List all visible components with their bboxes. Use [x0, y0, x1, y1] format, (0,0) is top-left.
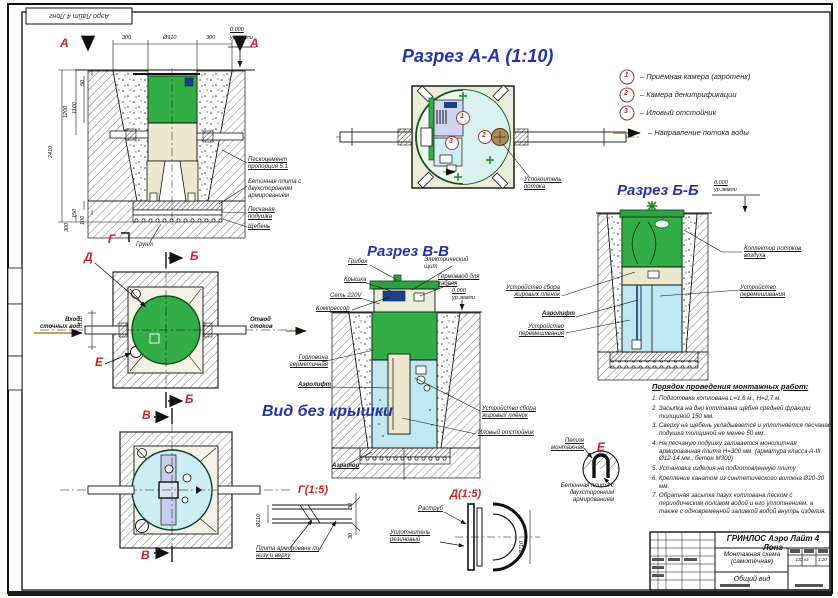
marker-v-top: В	[142, 408, 151, 422]
label-plate-reinforced: Плита армирована по низу и верху	[256, 546, 326, 560]
legend-num-1: 1	[625, 72, 629, 79]
legend-text-2: Камера денитрификации	[646, 90, 736, 99]
dim-d-d110: Ø110	[519, 541, 525, 554]
titleblock-product: ГРИНЛОС Аэро Лайт 4 Лонг	[716, 534, 830, 552]
dim-g-30a: 30	[348, 503, 354, 509]
dim-150: 150	[72, 209, 78, 218]
marker-e: Е	[95, 355, 103, 369]
aa-chamber-2: 2	[482, 132, 486, 139]
level-mark-vv: 0.000	[452, 288, 466, 294]
label-neck: Горловина герметичная	[282, 355, 328, 369]
aa-chamber-3: 3	[449, 138, 453, 145]
titleblock-scale: 1:20	[815, 557, 830, 562]
label-mixer-right: Устройство перемешивания	[740, 285, 802, 299]
marker-a-left: А	[60, 36, 69, 50]
label-airlift-vv: Аэролифт	[298, 382, 331, 389]
drawing-sheet: Аэро Лайт 4 Лонг Разрез А-А (1:10) Разре…	[0, 0, 838, 598]
label-grease-bb: Устройство сбора жировых пленок	[500, 285, 560, 299]
label-rastrub: Раструб	[418, 506, 443, 513]
dim-g-d110: Ø110	[256, 514, 262, 527]
title-detail-e: Е	[597, 440, 605, 454]
marker-v-bottom: В	[141, 548, 150, 562]
title-no-lid: Вид без крышки	[262, 403, 393, 421]
label-outlet: Отвод стоков	[250, 317, 286, 331]
titleblock-doc: Монтажная схема (самотёчная)	[716, 551, 788, 565]
level-sub-bb: ур.земли	[714, 187, 737, 193]
label-aerator: Аэратор	[332, 463, 359, 470]
level-mark-elevation: 0.000	[230, 27, 244, 33]
instruction-step: 7. Обратная засыпка пазух котлована песк…	[652, 492, 832, 515]
legend-dash-4: –	[648, 128, 652, 137]
label-grease-vv: Устройство сбора жировых плёнок	[482, 406, 544, 420]
dim-g-30b: 30	[348, 533, 354, 539]
title-section-bb: Разрез Б-Б	[617, 182, 699, 199]
instruction-step: 1. Подготовка котлована L=1,6 м., Н=2,7 …	[652, 395, 832, 403]
aa-chamber-1: 1	[460, 113, 464, 120]
label-sandcement: Пескоцемент пропорция 5:1	[248, 157, 300, 171]
legend-dash-3: –	[640, 108, 644, 117]
legend-text-1: Приёмная камера (аэротенк)	[646, 72, 750, 81]
level-mark-bb: 0.000	[714, 180, 728, 186]
label-concrete-plate: Бетонная плита с двухсторонним армирован…	[248, 179, 304, 200]
installation-instructions: Порядок проведения монтажных работ: 1. П…	[652, 382, 832, 516]
dim-1100: 1100	[72, 102, 78, 114]
instruction-step: 4. На песчаную подушку заливается моноли…	[652, 440, 832, 463]
dim-300-right: 300	[206, 35, 215, 41]
legend-num-3: 3	[624, 108, 628, 115]
label-inlet: Вход сточных вод	[36, 317, 80, 331]
label-plate-e: Бетонная плита с двухсторонним армирован…	[548, 483, 614, 504]
label-cable-gland: Гермоввод для кабеля	[438, 274, 484, 288]
label-electric-panel: Электрический щит	[424, 257, 476, 271]
instruction-step: 2. Засыпка на дно котлована щебня средне…	[652, 405, 832, 421]
marker-d: Д	[84, 250, 93, 264]
legend-flow: – Направление потока воды	[648, 128, 749, 137]
level-sub-vv: ур.земли	[452, 295, 475, 301]
title-section-aa: Разрез А-А (1:10)	[402, 46, 553, 67]
marker-b-bottom: Б	[185, 392, 194, 406]
label-mounting-loop: Петля монтажная	[542, 438, 584, 452]
label-sand-cushion: Песчаная подушка	[248, 207, 288, 221]
label-compressor: Компрессор	[316, 306, 350, 313]
dim-300-bottom: 300	[64, 223, 70, 232]
label-air-collector: Коллектор потоков воздуха	[744, 246, 802, 260]
dim-300-left: 300	[122, 35, 131, 41]
label-ground: Грунт	[136, 242, 153, 249]
dim-d910: Ø910	[163, 35, 176, 41]
legend-flow-text: Направление потока воды	[654, 128, 749, 137]
legend-item-2: – Камера денитрификации	[640, 90, 737, 99]
legend-num-2: 2	[624, 90, 628, 97]
dim-1200: 1200	[63, 106, 69, 118]
title-detail-g: Г(1:5)	[298, 484, 328, 496]
title-detail-d: Д(1:5)	[450, 488, 481, 500]
instructions-title: Порядок проведения монтажных работ:	[652, 382, 832, 391]
label-airlift-bb: Аэролифт	[542, 311, 575, 318]
instruction-step: 5. Установка изделия на подготовленную п…	[652, 465, 832, 473]
label-mixer-left: Устройство перемешивания	[504, 324, 564, 338]
marker-b-top: Б	[190, 249, 199, 263]
instruction-step: 3. Сверху на щебень укладывается и уплот…	[652, 422, 832, 438]
label-sludge-vv: Иловый отстойник	[478, 430, 534, 437]
instruction-step: 6. Крепление канатом из синтетического в…	[652, 475, 832, 491]
legend-item-3: – Иловый отстойник	[640, 108, 716, 117]
label-gravel: Щебень	[248, 224, 270, 231]
legend-dash-1: –	[640, 72, 644, 81]
label-flow-calmer: Успокоитель потока	[524, 177, 568, 191]
dim-2410: 2410	[48, 146, 54, 158]
dim-d110-plan: d110	[78, 316, 84, 328]
dim-100: 100	[80, 216, 86, 225]
legend-item-1: – Приёмная камера (аэротенк)	[640, 72, 750, 81]
label-mushroom: Грибок	[348, 259, 367, 266]
level-sub-elevation: ур.земли	[230, 35, 253, 41]
marker-g: Г	[108, 232, 115, 246]
corner-stamp-text: Аэро Лайт 4 Лонг	[26, 8, 132, 24]
titleblock-mass: 132 кг	[790, 557, 814, 562]
label-power-net: Сеть 220V	[330, 293, 361, 300]
legend-text-3: Иловый отстойник	[646, 108, 716, 117]
label-lid: Крышка	[344, 277, 366, 284]
legend-dash-2: –	[640, 90, 644, 99]
label-rubber-seal: Уплотнитель резиновый	[390, 530, 434, 544]
dim-50: 50	[80, 80, 86, 86]
titleblock-view: Общий вид	[716, 576, 788, 583]
